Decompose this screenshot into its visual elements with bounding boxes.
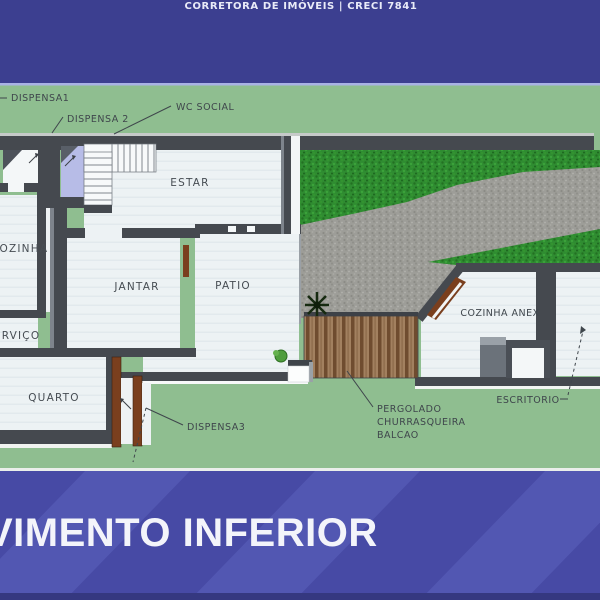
wall-edge: [0, 133, 594, 136]
label-estar: ESTAR: [170, 177, 209, 189]
room-escritorio: [556, 272, 600, 376]
pillar: [309, 362, 313, 382]
wall-edge: [142, 383, 151, 445]
top-banner-highlight: [0, 83, 600, 86]
annex-furniture: [480, 337, 550, 378]
wall-segment: [415, 377, 600, 386]
label-quarto: QUARTO: [28, 392, 80, 404]
walkway: [143, 357, 195, 372]
counter: [512, 348, 544, 378]
wall-edge: [50, 208, 54, 355]
door-panel: [133, 376, 142, 446]
door-opening: [121, 378, 133, 444]
label-pergolado-3: BALCAO: [377, 430, 419, 441]
window: [228, 226, 236, 232]
label-patio: PATIO: [215, 280, 251, 292]
top-banner-bg: [0, 0, 600, 83]
wall-segment: [0, 348, 196, 357]
wall-edge: [415, 386, 600, 389]
pergola-beam: [304, 312, 418, 316]
wall-segment: [456, 263, 600, 272]
pillar: [288, 360, 312, 366]
listing-graphic: DISPENSA1 DISPENSA 2 WC SOCIAL ESTAR COZ…: [0, 0, 600, 600]
label-cozinha-anexa: COZINHA ANEX: [460, 308, 539, 319]
pergola-slats: [304, 316, 418, 378]
room-jantar: [67, 238, 180, 348]
door-panel: [183, 245, 189, 277]
label-cozinha: COZINHA: [0, 243, 48, 255]
label-servico: SERVIÇO: [0, 330, 40, 342]
door-opening: [8, 183, 24, 192]
wall-segment: [106, 357, 112, 444]
wall-segment: [122, 228, 200, 238]
counter: [480, 337, 506, 345]
bottom-banner-divider: [0, 468, 600, 471]
label-dispensa2: DISPENSA 2: [67, 114, 129, 125]
floor-title: VIMENTO INFERIOR: [0, 511, 378, 555]
label-jantar: JANTAR: [113, 281, 159, 293]
label-dispensa3: DISPENSA3: [187, 422, 245, 433]
wall-edge: [46, 208, 50, 312]
wall-segment: [60, 228, 85, 238]
plant-icon: [314, 302, 321, 309]
door-panel: [112, 357, 121, 447]
pillar: [288, 366, 309, 382]
wall-segment: [84, 205, 112, 213]
wall-edge: [291, 136, 300, 234]
brokerage-text: CORRETORA DE IMÓVEIS | CRECI 7841: [185, 0, 418, 12]
wall-segment: [47, 197, 88, 208]
wall-edge: [281, 136, 284, 234]
floor-plan-canvas: DISPENSA1 DISPENSA 2 WC SOCIAL ESTAR COZ…: [0, 0, 600, 600]
wall-edge: [299, 234, 301, 324]
label-dispensa1: DISPENSA1: [11, 93, 69, 104]
label-pergolado-1: PERGOLADO: [377, 404, 441, 415]
wall-segment: [0, 430, 106, 444]
label-wc-social: WC SOCIAL: [176, 102, 234, 113]
wall-edge: [0, 444, 112, 448]
bush-icon: [273, 350, 279, 356]
window: [247, 226, 255, 232]
wall-segment: [0, 310, 46, 318]
top-banner: CORRETORA DE IMÓVEIS | CRECI 7841: [0, 0, 600, 86]
bottom-banner-edge: [0, 593, 600, 600]
label-pergolado-2: CHURRASQUEIRA: [377, 417, 466, 428]
bottom-banner: VIMENTO INFERIOR: [0, 468, 600, 600]
door-opening: [85, 228, 122, 238]
label-escritorio: ESCRITORIO: [496, 395, 559, 406]
